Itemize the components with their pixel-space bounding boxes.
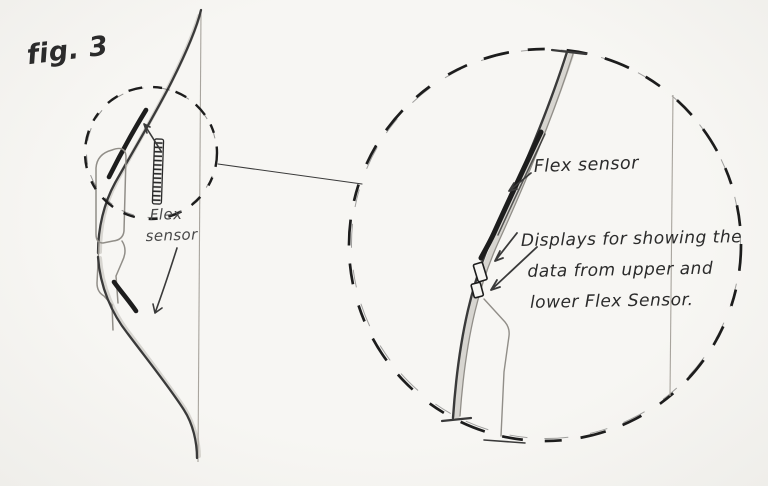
detail-flex-sensor-strip-edge bbox=[498, 134, 545, 235]
bow-flex-sensor-diagram: Flex sensor fig. 3 bbox=[0, 0, 768, 486]
displays-label-line1: Displays for showing the bbox=[521, 227, 743, 251]
figure-number-label: fig. 3 bbox=[25, 30, 110, 71]
sketch-paper: Flex sensor fig. 3 bbox=[0, 0, 768, 486]
overview-upper-flex-sensor-patch bbox=[109, 110, 146, 177]
overview-lower-sensor-arrow bbox=[153, 248, 177, 313]
overview-bowstring bbox=[198, 11, 201, 462]
callout-connector-line bbox=[218, 164, 362, 184]
detail-flex-sensor-label: Flex sensor bbox=[533, 153, 640, 177]
overview-flex-sensor-label-line1: Flex bbox=[150, 205, 183, 224]
displays-label-line3: lower Flex Sensor. bbox=[530, 290, 694, 313]
detail-view: Flex sensor Displays for showing the dat… bbox=[349, 49, 743, 443]
detail-limb-bottom-cap bbox=[442, 418, 471, 421]
overview-grip bbox=[97, 241, 125, 330]
detail-riser-outline bbox=[484, 299, 509, 436]
overview-bow: Flex sensor bbox=[85, 10, 217, 462]
flex-sensor-strip-icon bbox=[152, 139, 163, 204]
overview-lower-limb-shading bbox=[100, 258, 199, 456]
overview-upper-sensor-arrow bbox=[144, 124, 161, 151]
overview-flex-sensor-label-line2: sensor bbox=[145, 225, 198, 245]
displays-label-line2: data from upper and bbox=[527, 259, 713, 282]
